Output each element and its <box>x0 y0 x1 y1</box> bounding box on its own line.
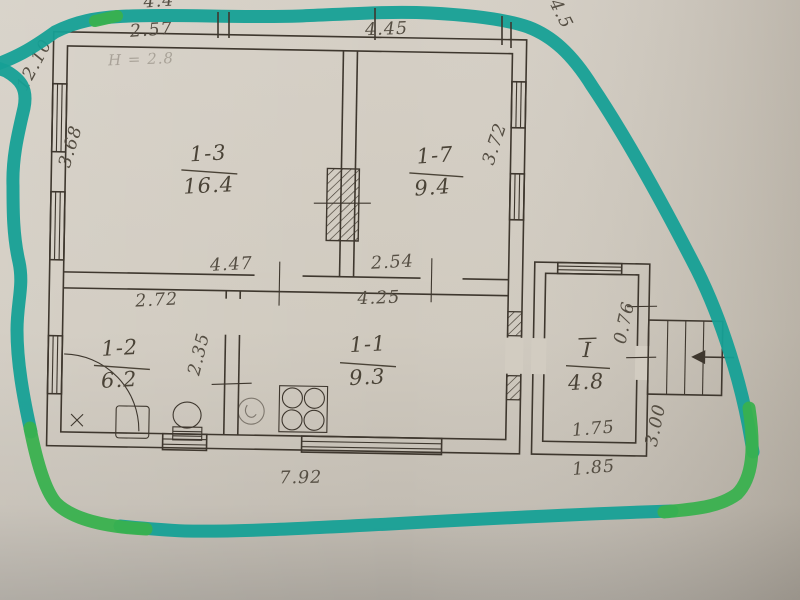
door-jamb-top <box>508 312 522 336</box>
door-opening-12 <box>224 299 243 335</box>
room-17-area: 9.4 <box>414 174 452 200</box>
dim-room11-top: 4.25 <box>356 288 401 310</box>
room-12-id: 1-2 <box>101 335 139 361</box>
dim-mid-right: 2.54 <box>369 252 414 274</box>
height-note: Н = 2.8 <box>107 49 175 69</box>
door-opening-13 <box>255 272 303 279</box>
tick-mid-left <box>279 262 280 306</box>
marker-green-top-dash <box>95 16 117 21</box>
chimney-flue <box>326 168 359 241</box>
vestibule-door-left <box>531 338 547 374</box>
door-opening-17 <box>420 275 462 282</box>
dim-bottom-total: 7.92 <box>279 468 322 489</box>
room-I-id: I <box>581 338 592 362</box>
room-11-id: 1-1 <box>349 331 387 357</box>
floor-plan-svg: 1-3 16.4 1-7 9.4 1-2 6.2 1-1 9.3 I 4.8 4… <box>0 0 800 600</box>
dim-mid-left: 4.47 <box>208 254 253 276</box>
floor-plan-photo: 1-3 16.4 1-7 9.4 1-2 6.2 1-1 9.3 I 4.8 4… <box>0 0 800 600</box>
door-jamb-bottom <box>506 376 520 400</box>
dim-vestibule-bottom: 1.75 <box>571 417 616 441</box>
room-I-area: 4.8 <box>566 369 605 396</box>
dim-porch-bottom: 1.85 <box>571 456 616 480</box>
door-opening-right <box>505 338 524 374</box>
tick-mid-right <box>431 258 432 302</box>
room-13-area: 16.4 <box>183 172 235 199</box>
room-13-id: 1-3 <box>189 140 227 166</box>
room-12-area: 6.2 <box>100 367 138 393</box>
dim-room12-top: 2.72 <box>134 289 179 311</box>
dim-top-left: 2.57 <box>128 19 173 42</box>
dim-top-middle: 4.45 <box>364 19 409 41</box>
room-17-id: 1-7 <box>416 142 454 169</box>
room-11-area: 9.3 <box>348 364 386 390</box>
